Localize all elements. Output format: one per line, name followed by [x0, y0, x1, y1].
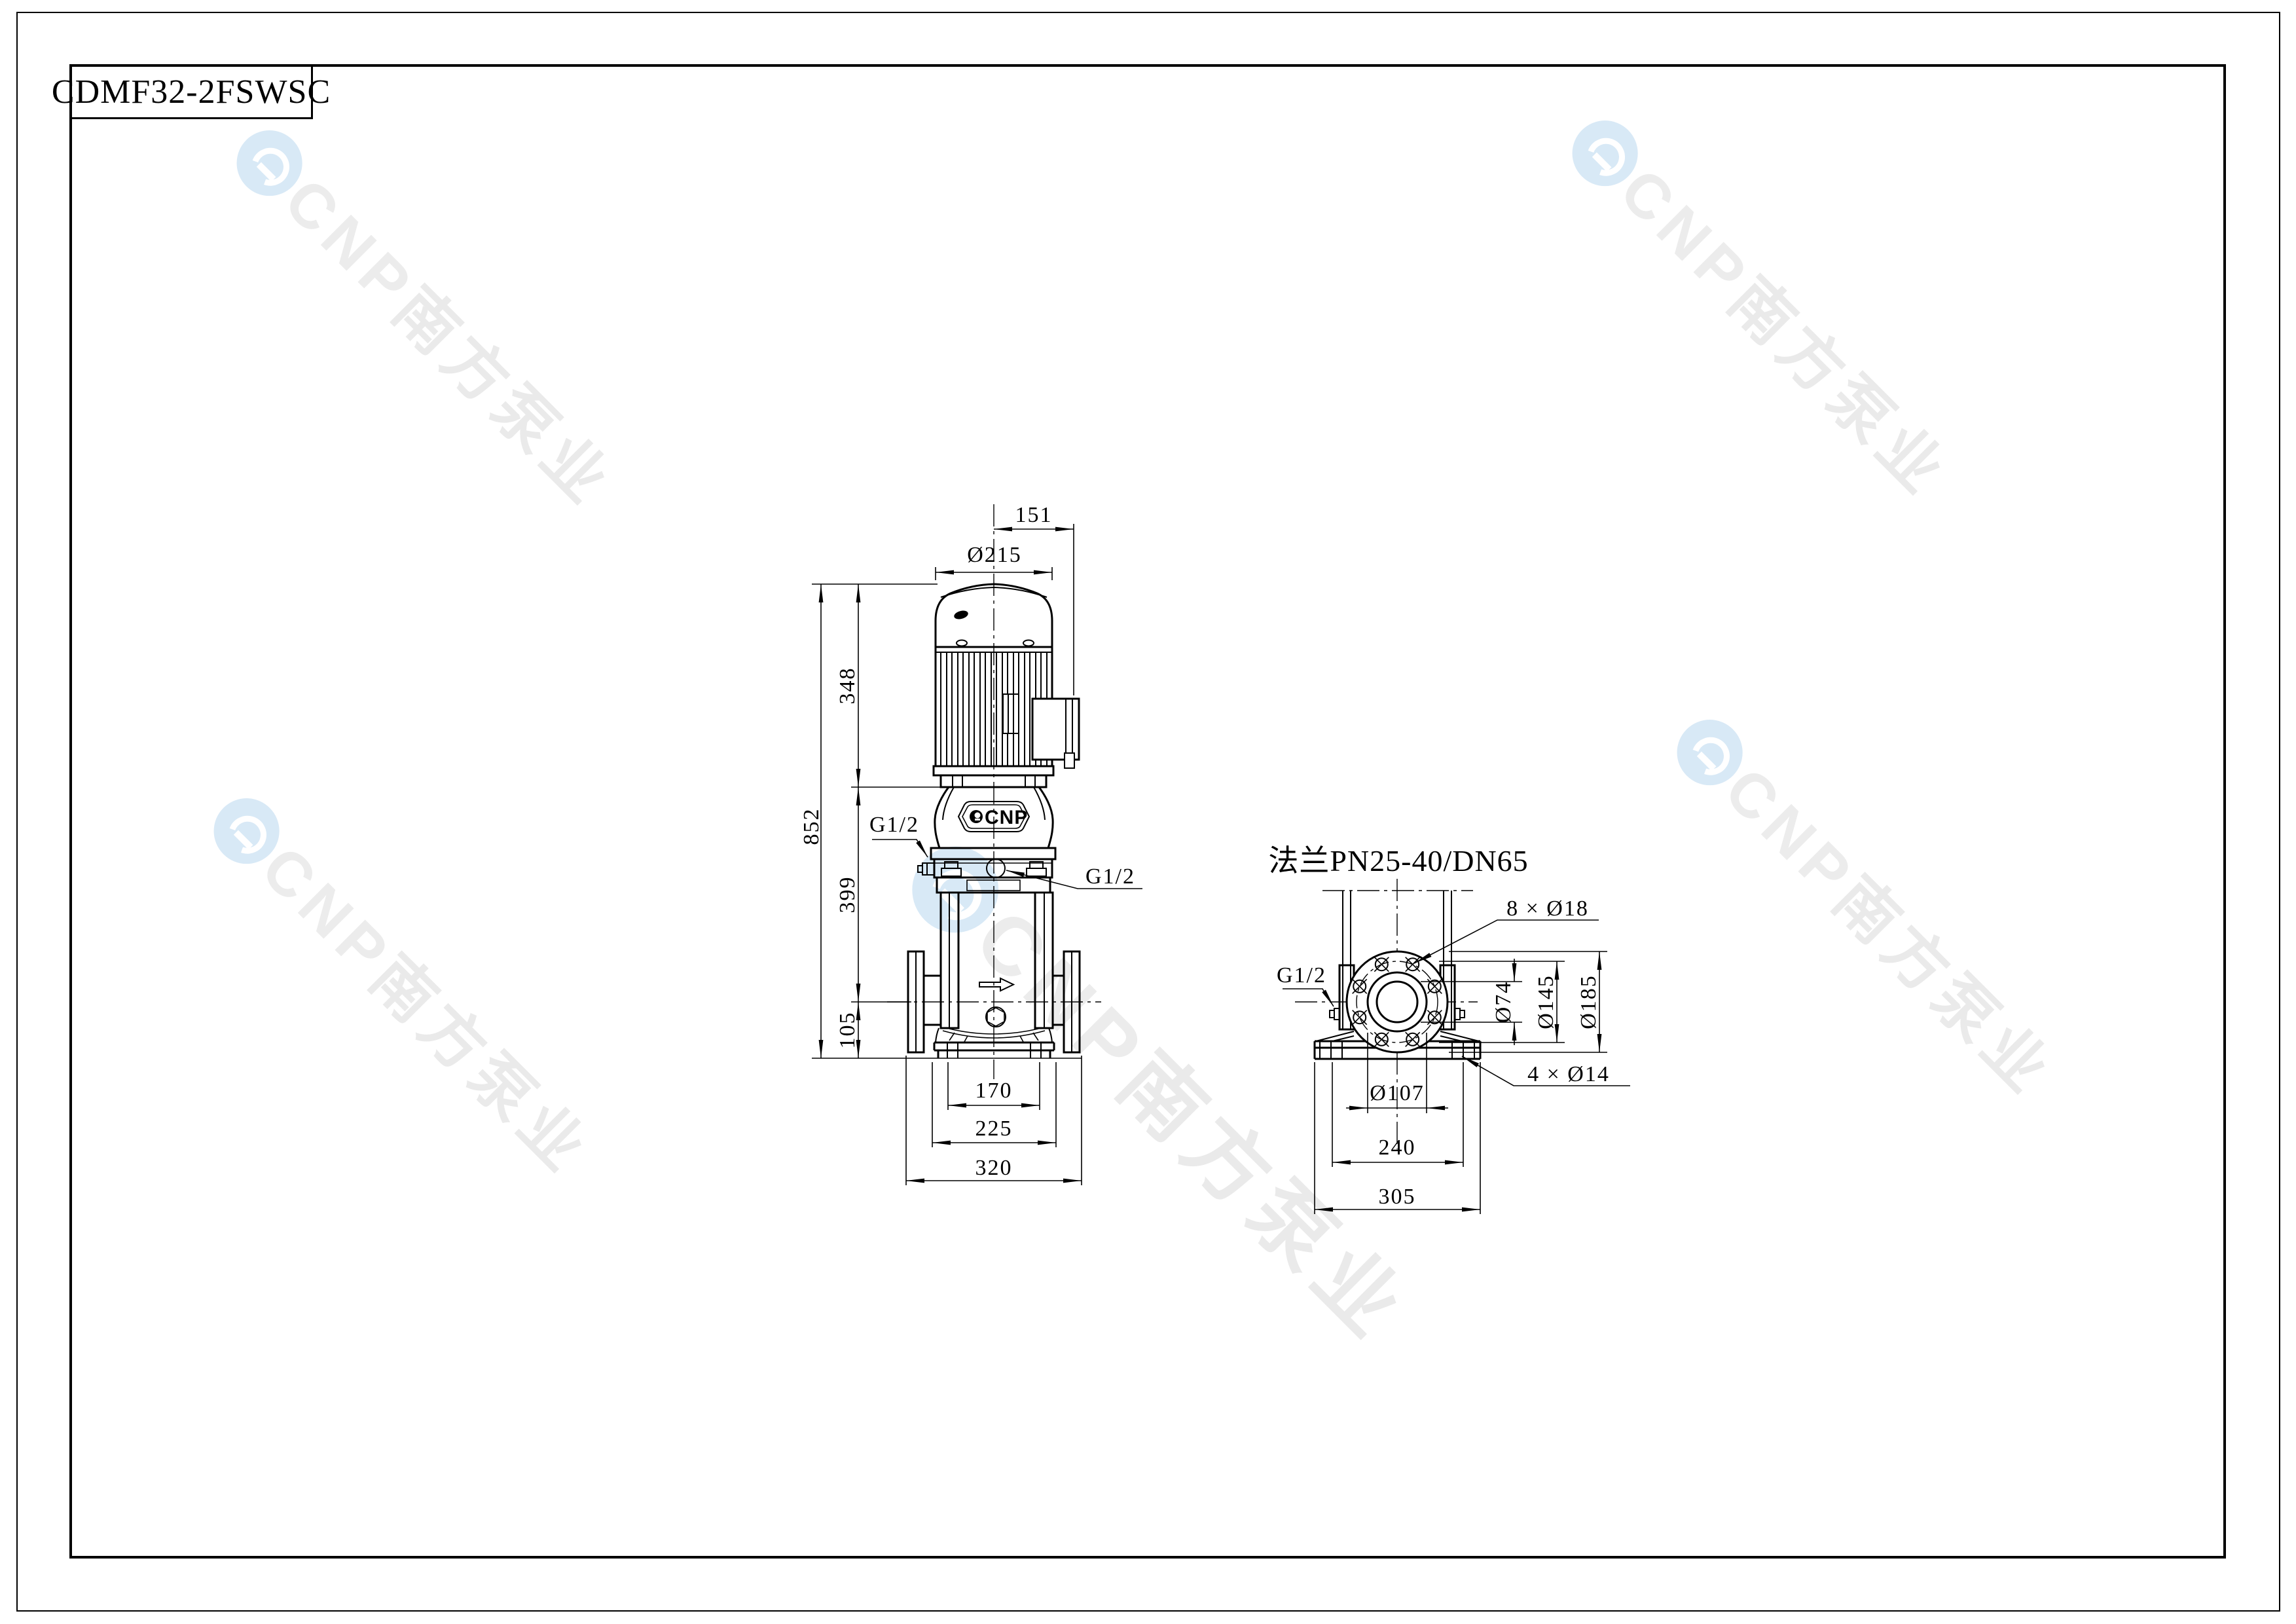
dim-bore-diameter: Ø74	[1491, 981, 1516, 1024]
pump-drawing: CNP	[0, 0, 2296, 1624]
fill-plug-right	[1027, 862, 1046, 876]
pump-casing	[941, 893, 1053, 1028]
label-port-drain: G1/2	[1085, 864, 1135, 889]
cnp-logo-plate: CNP	[958, 802, 1029, 832]
side-port-boss	[918, 863, 934, 875]
drain-port-circle	[987, 859, 1005, 877]
label-port-left: G1/2	[869, 813, 919, 837]
terminal-box	[1032, 699, 1079, 768]
pump-logo-text: CNP	[985, 807, 1028, 828]
dim-pump-section-height: 399	[835, 876, 860, 913]
flow-direction-arrow-icon	[979, 978, 1013, 991]
motor-nameplate	[1003, 694, 1019, 733]
fill-plug-left	[941, 862, 961, 876]
drawing-sheet: { "sheet": { "part_number": "CDMF32-2FSW…	[0, 0, 2296, 1624]
dim-baseplate-width: 305	[1379, 1185, 1416, 1209]
dim-bolt-circle: Ø145	[1534, 974, 1558, 1029]
dim-foot-inner-width: 170	[975, 1079, 1013, 1103]
dim-total-height: 852	[799, 808, 824, 845]
side-port-left	[1330, 1008, 1339, 1020]
front-view-dimensions: 151 Ø215 852 348 399 105 G1/2 G1/2 170 2…	[799, 503, 1142, 1185]
dim-bolt-holes: 8 × Ø18	[1506, 896, 1589, 921]
dim-foot-hole-span: 240	[1379, 1135, 1416, 1160]
eye-bolt-icon	[953, 609, 969, 620]
dim-flange-span: 320	[975, 1156, 1013, 1180]
label-flange-port: G1/2	[1277, 963, 1326, 987]
flange-outer-circle	[1347, 951, 1448, 1052]
dim-base-height: 105	[835, 1012, 860, 1049]
dim-top-offset: 151	[1015, 503, 1053, 527]
support-plate	[937, 877, 1050, 893]
dim-base-width: 225	[975, 1116, 1013, 1141]
dim-raised-face: Ø107	[1370, 1081, 1425, 1105]
dim-motor-height: 348	[835, 667, 860, 705]
flange-face	[1347, 951, 1448, 1052]
dim-anchor-holes: 4 × Ø14	[1527, 1062, 1610, 1086]
flange-view-title: 法兰PN25-40/DN65	[1268, 844, 1528, 877]
side-port-right	[1455, 1008, 1465, 1020]
motor-cooling-fins	[936, 647, 1079, 768]
flange-view-dimensions: 8 × Ø18 G1/2 Ø74 Ø145 Ø185 Ø107 4 × Ø14 …	[1277, 896, 1630, 1214]
pump-head: CNP	[931, 787, 1055, 859]
flange-view: 法兰PN25-40/DN65	[1268, 844, 1630, 1214]
front-view: CNP	[799, 503, 1142, 1185]
dim-motor-diameter: Ø215	[967, 543, 1022, 567]
dim-flange-od: Ø185	[1576, 974, 1601, 1029]
drain-plug	[986, 1007, 1006, 1027]
seal-housing	[918, 859, 1052, 877]
